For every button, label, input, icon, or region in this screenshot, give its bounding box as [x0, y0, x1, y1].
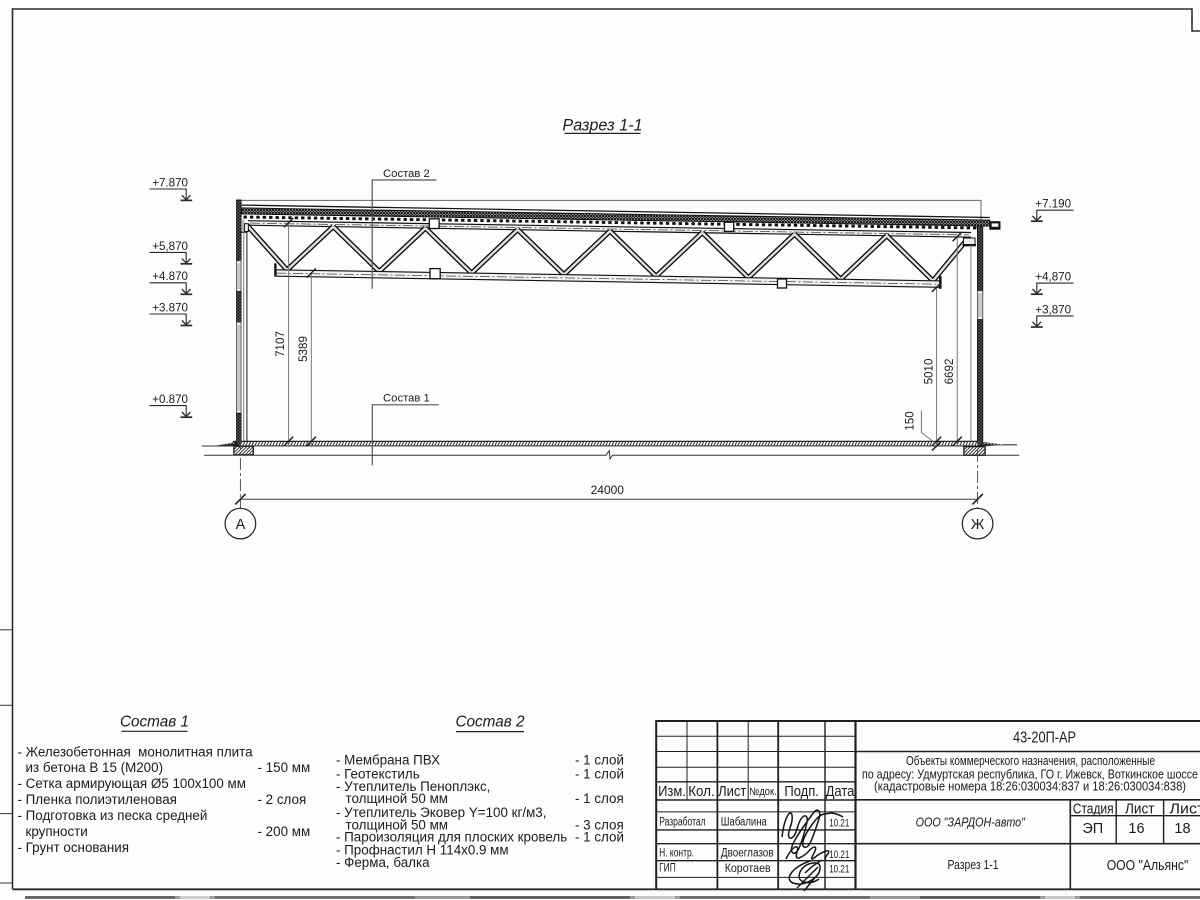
svg-text:+3.870: +3.870 — [152, 301, 188, 314]
svg-text:Дата: Дата — [826, 783, 855, 800]
svg-text:из бетона В 15 (М200): из бетона В 15 (М200) — [26, 760, 164, 775]
svg-text:+7.870: +7.870 — [152, 176, 188, 189]
svg-text:150: 150 — [904, 411, 917, 430]
svg-text:Шабалина: Шабалина — [721, 816, 767, 828]
svg-text:+4.870: +4.870 — [152, 270, 188, 283]
svg-text:Состав 1: Состав 1 — [120, 713, 189, 730]
svg-text:+5,870: +5,870 — [152, 240, 188, 253]
svg-text:ГИП: ГИП — [659, 863, 676, 875]
svg-text:+7.190: +7.190 — [1035, 198, 1071, 211]
svg-text:Ж: Ж — [971, 517, 985, 533]
svg-text:Двоеглазов: Двоеглазов — [721, 848, 774, 860]
svg-text:- 1 слоя: - 1 слоя — [575, 791, 624, 806]
svg-text:- 1 слой: - 1 слой — [575, 766, 624, 781]
svg-text:крупности: крупности — [26, 824, 88, 839]
svg-text:- 200 мм: - 200 мм — [258, 824, 311, 839]
svg-text:А: А — [236, 517, 246, 533]
svg-text:Состав 2: Состав 2 — [455, 714, 525, 731]
svg-text:Н. контр.: Н. контр. — [659, 848, 694, 860]
svg-text:7107: 7107 — [274, 331, 287, 357]
svg-text:- 2 слоя: - 2 слоя — [258, 792, 307, 807]
svg-text:- Пленка полиэтиленовая: - Пленка полиэтиленовая — [18, 792, 177, 807]
svg-text:43-20П-АР: 43-20П-АР — [1013, 730, 1076, 747]
svg-text:(кадастровые номера 18:26:0300: (кадастровые номера 18:26:030034:837 и 1… — [874, 779, 1186, 794]
svg-text:10.21: 10.21 — [829, 864, 849, 876]
svg-text:- 1 слой: - 1 слой — [575, 830, 624, 845]
svg-text:ООО "Альянс": ООО "Альянс" — [1107, 858, 1189, 874]
svg-text:толщиной 50 мм: толщиной 50 мм — [346, 791, 449, 806]
svg-text:+4,870: +4,870 — [1035, 271, 1071, 284]
svg-text:10.21: 10.21 — [829, 818, 849, 830]
svg-text:- 1 слой: - 1 слой — [575, 753, 624, 768]
svg-text:Кол.: Кол. — [688, 783, 715, 800]
svg-text:5010: 5010 — [922, 359, 935, 385]
svg-text:Лист: Лист — [1125, 801, 1155, 817]
svg-text:Состав 1: Состав 1 — [383, 392, 430, 404]
svg-text:24000: 24000 — [591, 483, 625, 497]
svg-text:10.21: 10.21 — [829, 849, 849, 861]
svg-text:- Ферма, балка: - Ферма, балка — [336, 855, 430, 870]
svg-text:- Мембрана ПВХ: - Мембрана ПВХ — [336, 753, 440, 768]
svg-text:Коротаев: Коротаев — [725, 863, 771, 875]
svg-text:6692: 6692 — [943, 359, 956, 385]
svg-text:ЭП: ЭП — [1082, 821, 1103, 837]
svg-text:Листов: Листов — [1170, 801, 1200, 817]
svg-text:18: 18 — [1174, 821, 1190, 837]
svg-text:Изм.: Изм. — [658, 783, 686, 800]
svg-text:+0.870: +0.870 — [152, 393, 188, 406]
svg-text:- Подготовка из песка средней: - Подготовка из песка средней — [18, 808, 208, 823]
svg-text:ООО "ЗАРДОН-авто": ООО "ЗАРДОН-авто" — [916, 815, 1026, 830]
svg-text:- Железобетонная монолитная п: - Железобетонная монолитная плита — [18, 745, 254, 760]
svg-text:Лист: Лист — [718, 783, 746, 800]
svg-text:Разрез 1-1: Разрез 1-1 — [948, 857, 999, 872]
svg-text:№док.: №док. — [749, 786, 776, 798]
svg-text:Разработал: Разработал — [659, 817, 705, 829]
svg-text:- Грунт основания: - Грунт основания — [18, 840, 129, 855]
svg-text:Подп.: Подп. — [784, 783, 819, 800]
svg-text:16: 16 — [1128, 821, 1144, 837]
svg-text:- Сетка армирующая Ø5 100х100: - Сетка армирующая Ø5 100х100 мм — [18, 776, 246, 791]
svg-text:+3,870: +3,870 — [1035, 303, 1071, 316]
svg-text:- 150 мм: - 150 мм — [258, 760, 311, 775]
svg-text:Разрез 1-1: Разрез 1-1 — [562, 117, 642, 135]
svg-text:Состав 2: Состав 2 — [383, 168, 430, 180]
svg-text:5389: 5389 — [297, 336, 310, 362]
svg-text:Стадия: Стадия — [1073, 801, 1114, 817]
